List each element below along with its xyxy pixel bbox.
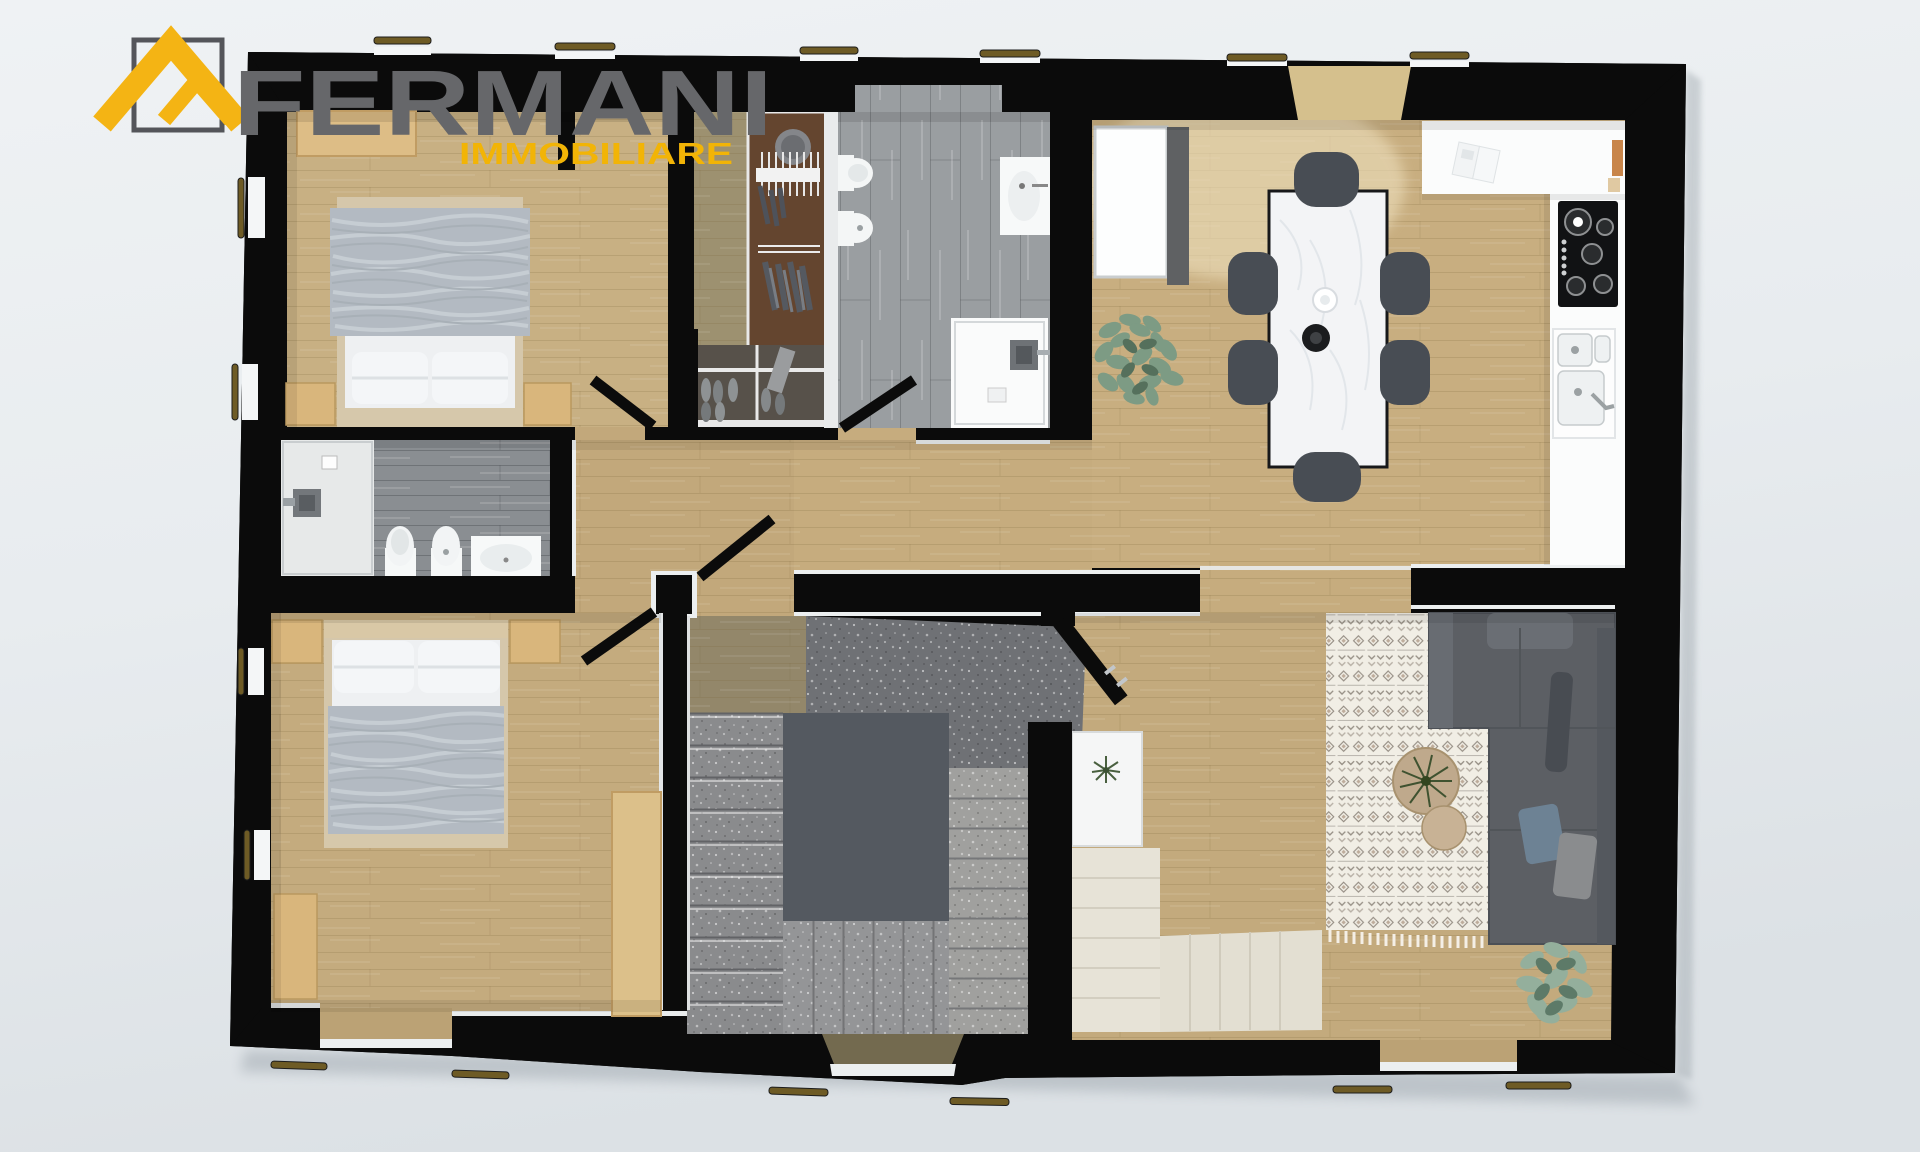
svg-text:IMMOBILIARE: IMMOBILIARE — [459, 136, 733, 171]
